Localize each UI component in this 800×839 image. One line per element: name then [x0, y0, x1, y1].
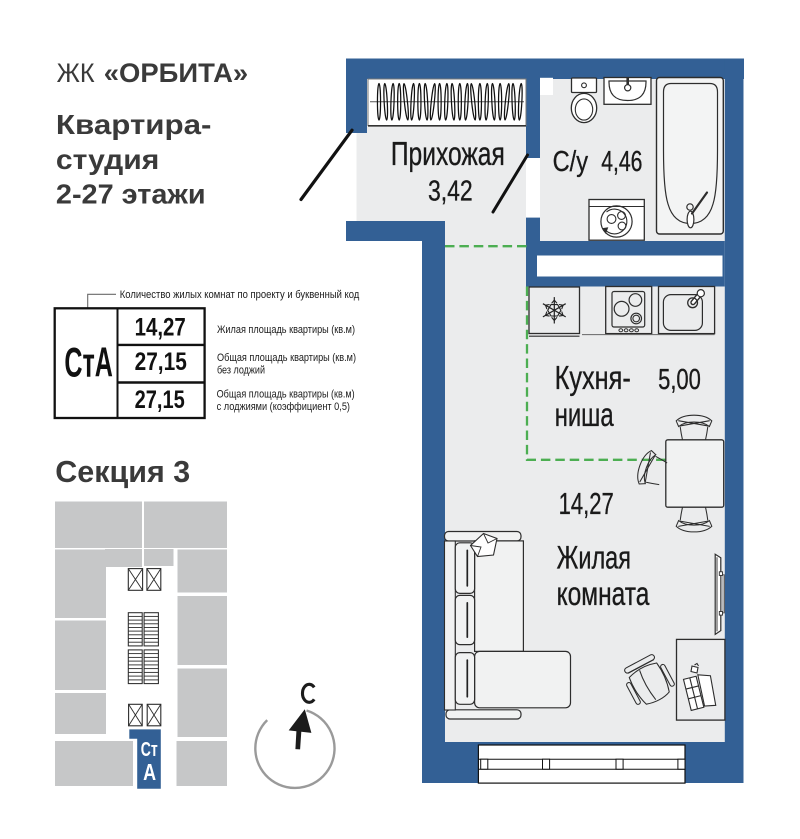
svg-text:3,42: 3,42	[428, 175, 473, 207]
svg-text:Общая площадь квартиры (кв.м): Общая площадь квартиры (кв.м)	[217, 388, 355, 400]
svg-text:5,00: 5,00	[658, 364, 701, 396]
svg-text:Жилая площадь квартиры (кв.м): Жилая площадь квартиры (кв.м)	[217, 324, 355, 336]
svg-text:с лоджиями (коэффициент 0,5): с лоджиями (коэффициент 0,5)	[217, 401, 350, 413]
svg-text:Ст: Ст	[141, 739, 158, 761]
svg-text:2-27 этажи: 2-27 этажи	[56, 179, 206, 210]
svg-text:Общая площадь квартиры (кв.м): Общая площадь квартиры (кв.м)	[217, 352, 356, 364]
svg-text:Количество жилых комнат по про: Количество жилых комнат по проекту и бук…	[120, 289, 360, 301]
svg-text:студия: студия	[56, 144, 159, 175]
svg-text:«ОРБИТА»: «ОРБИТА»	[104, 58, 248, 88]
svg-text:27,15: 27,15	[135, 386, 185, 414]
svg-text:Кухня-: Кухня-	[555, 359, 631, 396]
svg-text:ЖК: ЖК	[57, 58, 95, 88]
svg-text:Жилая: Жилая	[557, 539, 631, 575]
svg-text:А: А	[143, 759, 156, 785]
svg-text:С/у: С/у	[553, 146, 589, 178]
svg-text:4,46: 4,46	[601, 146, 642, 178]
svg-text:Секция 3: Секция 3	[55, 455, 190, 489]
svg-text:комната: комната	[557, 575, 650, 612]
svg-text:без лоджий: без лоджий	[217, 365, 265, 377]
svg-text:Прихожая: Прихожая	[391, 135, 505, 172]
svg-text:14,27: 14,27	[559, 486, 614, 521]
svg-text:27,15: 27,15	[135, 348, 187, 376]
svg-text:ниша: ниша	[555, 396, 614, 433]
svg-text:14,27: 14,27	[135, 313, 186, 341]
svg-text:СтА: СтА	[64, 339, 113, 386]
svg-text:Квартира-: Квартира-	[56, 109, 212, 140]
